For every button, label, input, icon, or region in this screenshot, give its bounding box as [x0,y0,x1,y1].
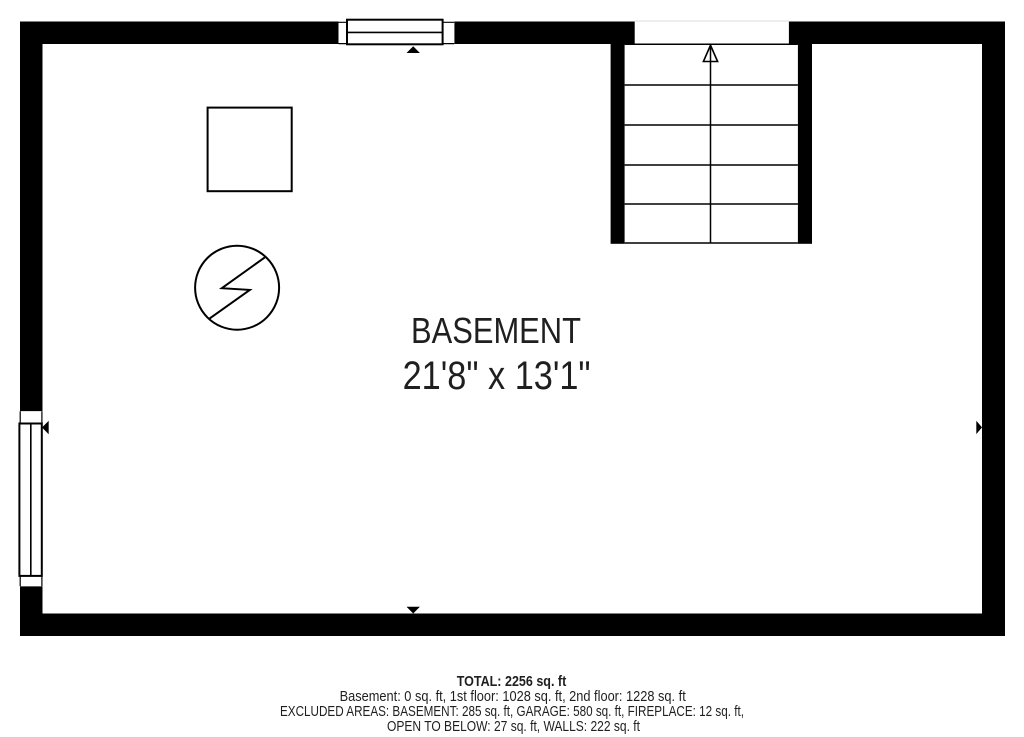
svg-text:OPEN TO BELOW: 27 sq. ft, WALL: OPEN TO BELOW: 27 sq. ft, WALLS: 222 sq.… [387,718,641,735]
svg-text:21'8" x 13'1": 21'8" x 13'1" [403,354,591,398]
svg-text:BASEMENT: BASEMENT [411,310,581,351]
